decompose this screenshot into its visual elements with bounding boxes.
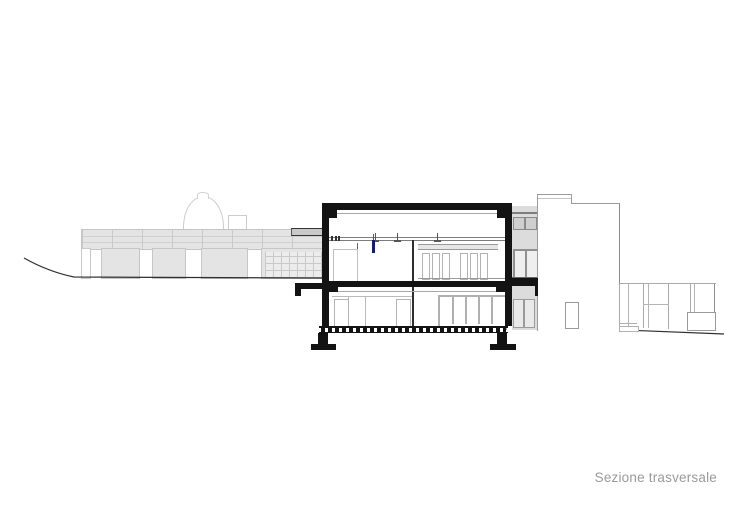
hatch-tick [335, 236, 337, 241]
roof-soffit-line [329, 213, 505, 214]
right-wall-cut [505, 203, 512, 326]
floor-slab-cut [329, 281, 505, 287]
roof-slab-cut [322, 203, 512, 210]
footing-column [497, 333, 507, 344]
door-panel [442, 253, 450, 280]
lower-door [396, 299, 411, 328]
slab-drop-left [295, 289, 301, 296]
ground-slab-bottom-line [319, 332, 508, 334]
roof-beam-block [497, 210, 505, 218]
mezzanine-line [329, 240, 505, 241]
slab-hook [329, 287, 338, 292]
level-marker-blue [372, 240, 375, 253]
hatch-tick [331, 236, 333, 241]
drawing-caption: Sezione trasversale [595, 470, 717, 485]
glazing-mullion [465, 297, 467, 324]
footing-pad [311, 344, 336, 350]
drawing-canvas: Sezione trasversale [0, 0, 750, 530]
section-cut [0, 0, 750, 530]
slab-drop-right [535, 286, 538, 296]
lower-ceiling-line [329, 291, 505, 292]
hanger-cap [394, 240, 401, 242]
slab-extension-right [512, 278, 538, 286]
glazing-mullion [478, 297, 480, 324]
footing-column [318, 333, 328, 344]
door-panel [460, 253, 468, 280]
door-panel [480, 253, 488, 280]
slab-hook [496, 287, 505, 292]
door-panel [422, 253, 430, 280]
hanger-cap [434, 240, 441, 242]
glazing-mullion [452, 297, 454, 324]
door-panel [432, 253, 440, 280]
roof-beam-block [329, 210, 337, 218]
glazing-mullion [491, 297, 493, 324]
upper-band-right [418, 244, 498, 250]
mezzanine-line [329, 237, 505, 238]
footing-pad [490, 344, 516, 350]
hatch-tick [338, 236, 340, 241]
lower-rail [332, 296, 412, 297]
lower-door [334, 299, 349, 328]
upper-sill-line [418, 278, 505, 279]
upper-room-outline [333, 249, 358, 282]
lower-partition [365, 296, 366, 326]
glazed-partition [438, 295, 507, 330]
left-wall-cut [322, 203, 329, 326]
door-panel [470, 253, 478, 280]
